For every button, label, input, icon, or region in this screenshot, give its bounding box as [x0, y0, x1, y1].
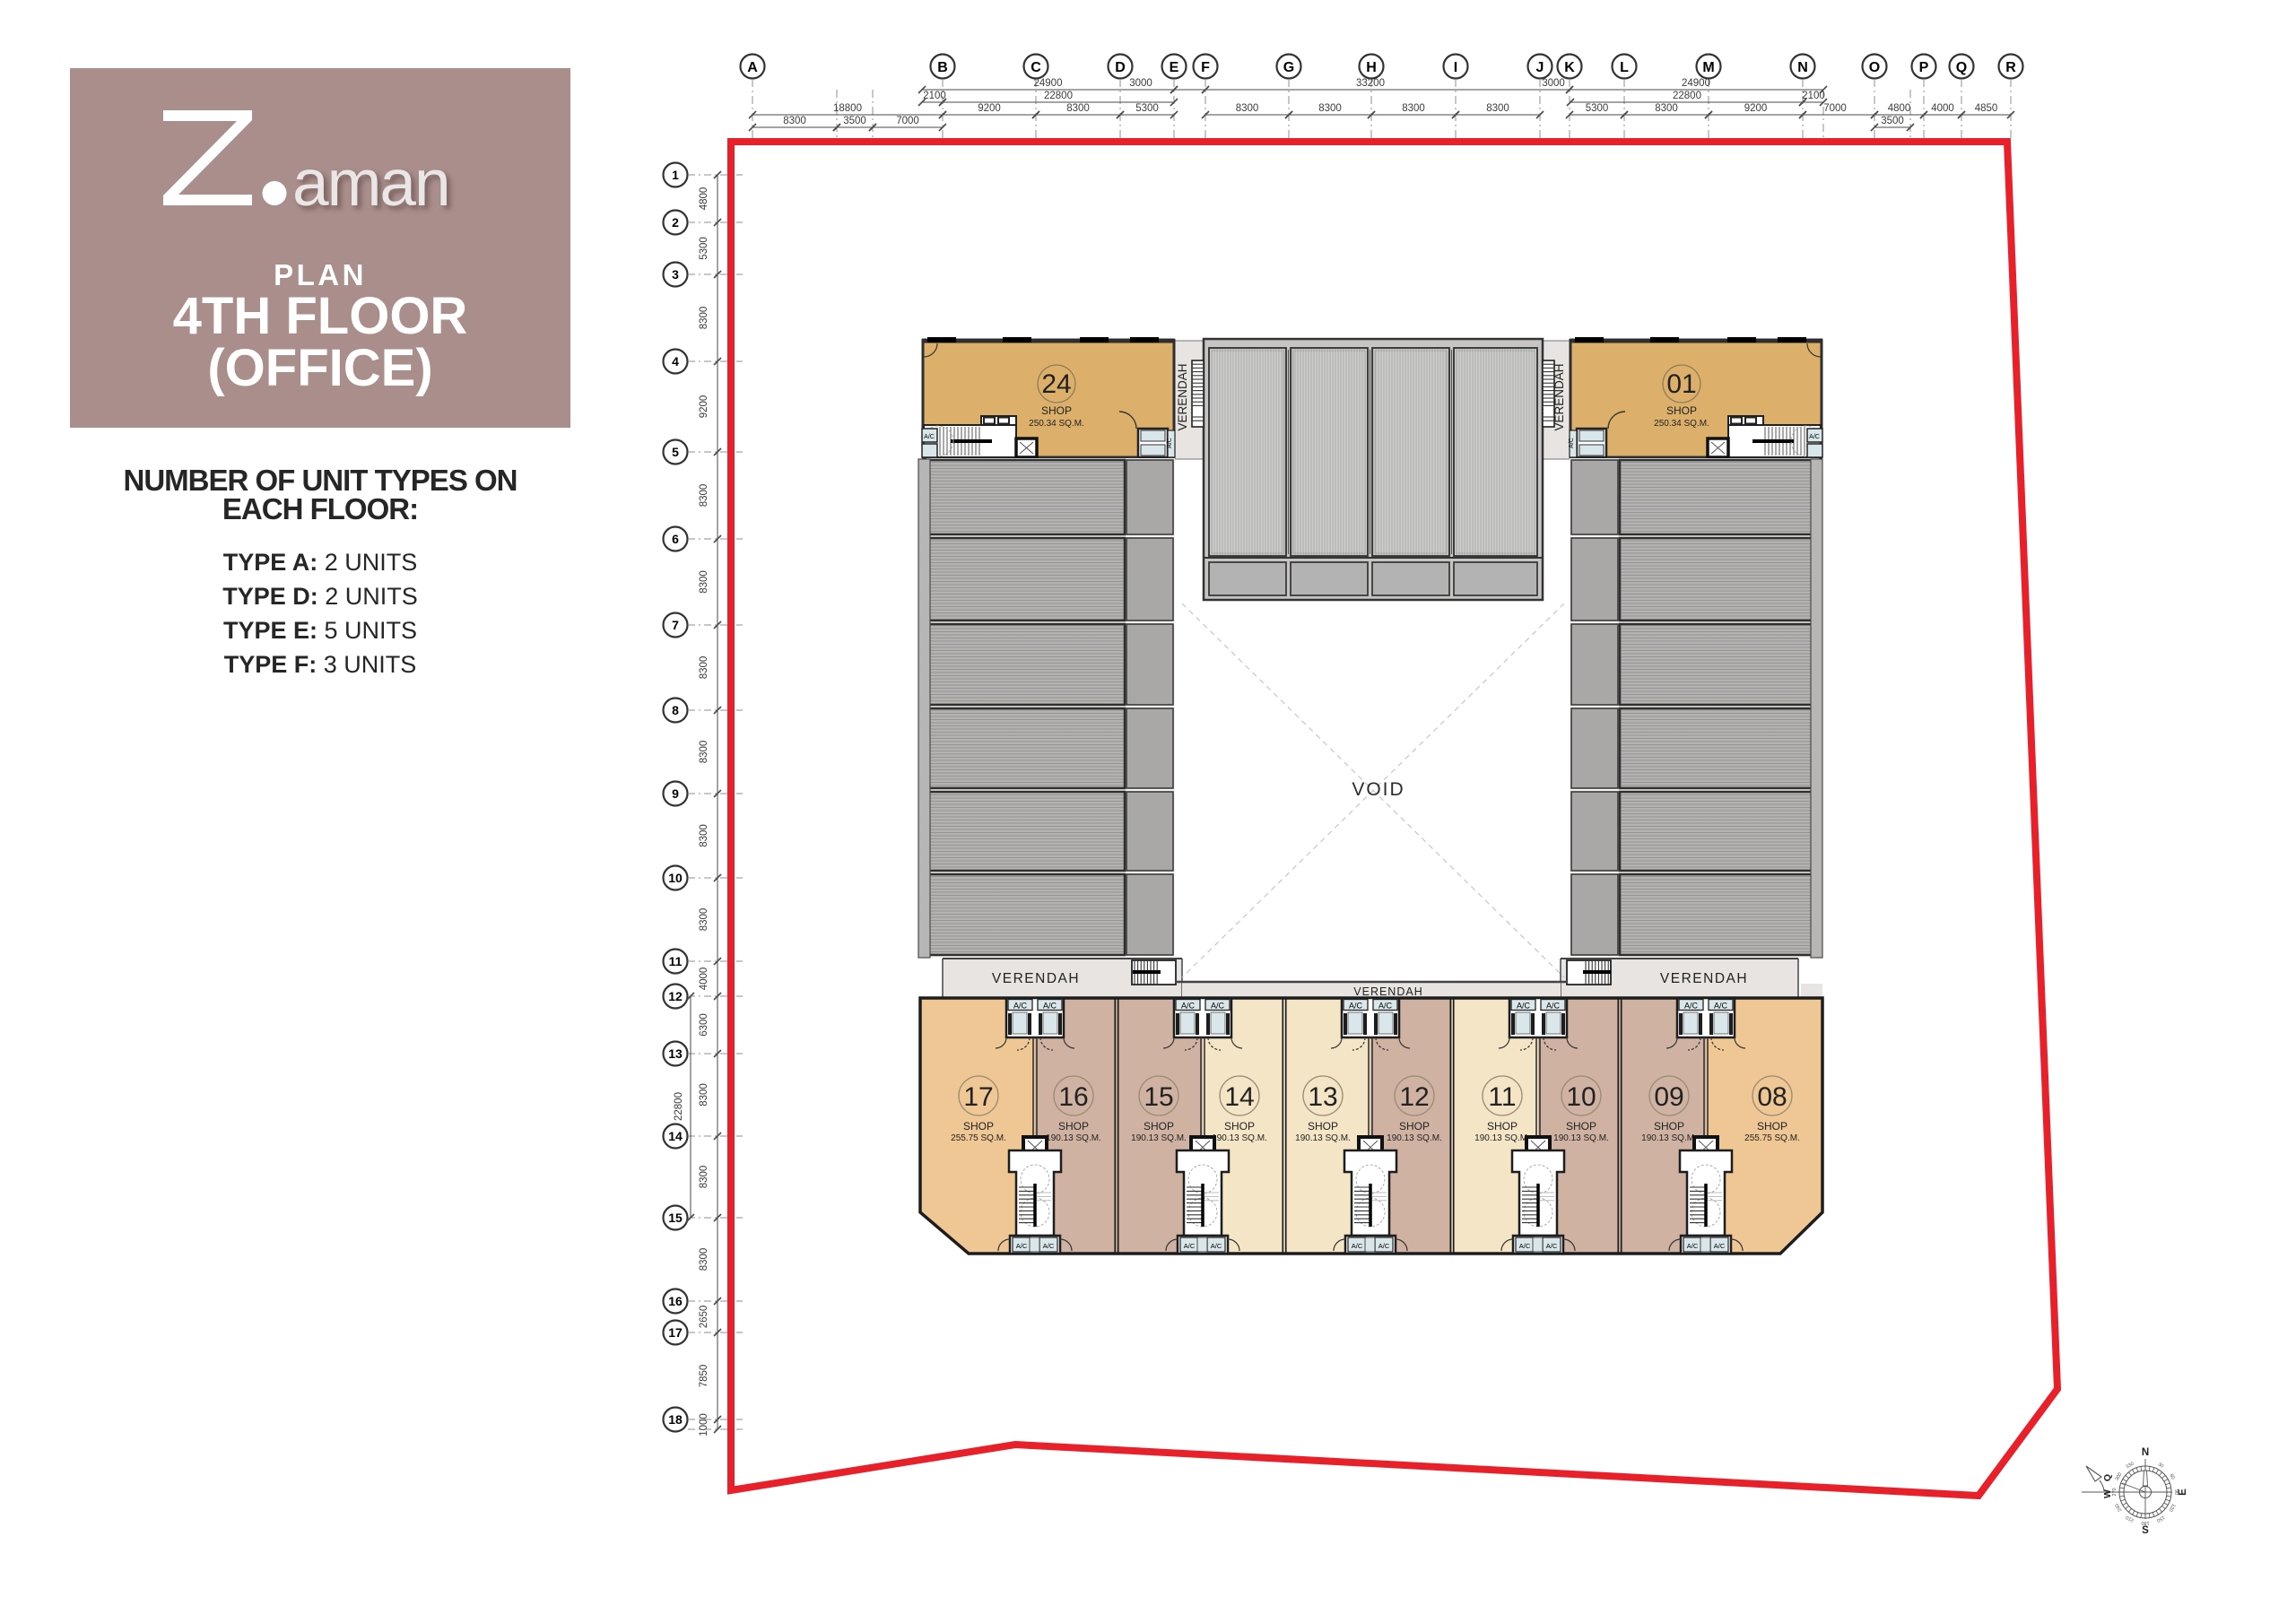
svg-text:A: A	[747, 60, 758, 75]
svg-text:SHOP: SHOP	[1144, 1120, 1174, 1133]
svg-text:4800: 4800	[1888, 103, 1911, 114]
svg-text:8300: 8300	[699, 570, 709, 594]
svg-text:8300: 8300	[783, 116, 806, 126]
svg-text:8300: 8300	[699, 908, 709, 932]
svg-text:A/C: A/C	[1546, 1002, 1561, 1011]
svg-text:8300: 8300	[1066, 103, 1090, 114]
svg-text:8300: 8300	[699, 484, 709, 508]
svg-text:250.34 SQ.M.: 250.34 SQ.M.	[1029, 419, 1084, 429]
svg-text:A/C: A/C	[1684, 1002, 1699, 1011]
svg-text:M: M	[1702, 60, 1714, 75]
svg-text:E: E	[1170, 60, 1179, 75]
svg-text:255.75 SQ.M.: 255.75 SQ.M.	[951, 1133, 1006, 1143]
svg-text:9: 9	[672, 786, 679, 801]
svg-text:1000: 1000	[699, 1413, 709, 1436]
svg-text:1: 1	[672, 168, 679, 182]
svg-text:S: S	[2142, 1525, 2149, 1536]
svg-text:4850: 4850	[1975, 103, 1998, 114]
svg-text:SHOP: SHOP	[1058, 1120, 1089, 1133]
svg-text:4000: 4000	[1931, 103, 1954, 114]
svg-text:A/C: A/C	[1687, 1242, 1699, 1250]
svg-text:8300: 8300	[1236, 103, 1259, 114]
svg-text:8300: 8300	[1402, 103, 1425, 114]
svg-text:18800: 18800	[833, 103, 862, 114]
svg-text:J: J	[1536, 60, 1544, 75]
svg-text:12: 12	[668, 989, 683, 1003]
svg-text:250.34 SQ.M.: 250.34 SQ.M.	[1654, 419, 1709, 429]
svg-text:8300: 8300	[1486, 103, 1509, 114]
svg-text:O: O	[1869, 60, 1880, 75]
svg-text:16: 16	[1058, 1082, 1088, 1112]
svg-text:Q: Q	[2102, 1474, 2113, 1481]
svg-text:33200: 33200	[1356, 78, 1385, 89]
svg-text:A/C: A/C	[1013, 1002, 1028, 1011]
svg-text:4000: 4000	[699, 968, 709, 991]
svg-text:2: 2	[672, 215, 679, 230]
svg-text:08: 08	[1757, 1082, 1787, 1112]
svg-text:12: 12	[1399, 1082, 1429, 1112]
svg-text:3500: 3500	[1881, 116, 1904, 126]
svg-text:8300: 8300	[1655, 103, 1678, 114]
svg-text:A/C: A/C	[1569, 438, 1575, 448]
svg-text:190.13 SQ.M.: 190.13 SQ.M.	[1641, 1133, 1697, 1143]
svg-text:5300: 5300	[1586, 103, 1609, 114]
svg-text:I: I	[1454, 60, 1457, 75]
svg-text:A/C: A/C	[1352, 1242, 1363, 1250]
svg-text:SHOP: SHOP	[1399, 1120, 1430, 1133]
svg-text:L: L	[1620, 60, 1629, 75]
svg-text:13: 13	[1308, 1082, 1337, 1112]
svg-text:24: 24	[1041, 369, 1071, 399]
svg-text:30: 30	[2157, 1462, 2164, 1469]
svg-text:22800: 22800	[674, 1092, 684, 1121]
svg-text:8300: 8300	[699, 656, 709, 680]
svg-text:N: N	[2142, 1447, 2149, 1458]
svg-text:2100: 2100	[1802, 91, 1825, 101]
svg-text:A/C: A/C	[1517, 1002, 1531, 1011]
svg-text:10: 10	[668, 871, 683, 885]
svg-text:270: 270	[2112, 1488, 2118, 1496]
svg-text:A/C: A/C	[1809, 434, 1820, 440]
svg-text:A/C: A/C	[1043, 1002, 1057, 1011]
svg-text:17: 17	[963, 1082, 993, 1112]
svg-text:190.13 SQ.M.: 190.13 SQ.M.	[1046, 1133, 1101, 1143]
svg-text:SHOP: SHOP	[1487, 1120, 1518, 1133]
svg-text:2100: 2100	[923, 91, 946, 101]
svg-text:K: K	[1564, 60, 1575, 75]
svg-text:VERENDAH: VERENDAH	[1353, 985, 1422, 998]
svg-text:8300: 8300	[699, 741, 709, 764]
svg-text:R: R	[2005, 60, 2016, 75]
svg-text:4: 4	[672, 354, 679, 369]
svg-text:SHOP: SHOP	[1224, 1120, 1255, 1133]
svg-text:SHOP: SHOP	[1041, 404, 1072, 417]
svg-text:5300: 5300	[1135, 103, 1159, 114]
svg-text:7000: 7000	[896, 116, 919, 126]
svg-text:4800: 4800	[699, 187, 709, 211]
svg-text:3500: 3500	[843, 116, 866, 126]
svg-text:9200: 9200	[978, 103, 1001, 114]
svg-text:11: 11	[1488, 1082, 1516, 1112]
svg-text:8: 8	[672, 703, 679, 717]
svg-text:A/C: A/C	[1167, 438, 1173, 448]
svg-text:SHOP: SHOP	[1308, 1120, 1338, 1133]
svg-text:8300: 8300	[699, 1166, 709, 1189]
svg-text:A/C: A/C	[1211, 1242, 1222, 1250]
svg-text:3000: 3000	[1129, 78, 1152, 89]
svg-text:A/C: A/C	[1714, 1242, 1726, 1250]
svg-text:13: 13	[668, 1046, 683, 1061]
svg-text:18: 18	[668, 1412, 683, 1427]
svg-text:A/C: A/C	[1349, 1002, 1363, 1011]
svg-text:D: D	[1115, 60, 1126, 75]
svg-text:8300: 8300	[699, 1083, 709, 1107]
svg-text:7000: 7000	[1823, 103, 1847, 114]
svg-text:5300: 5300	[699, 237, 709, 260]
svg-text:7850: 7850	[699, 1365, 709, 1388]
svg-text:3000: 3000	[1542, 78, 1565, 89]
svg-text:VERENDAH: VERENDAH	[992, 971, 1080, 986]
svg-text:SHOP: SHOP	[1666, 404, 1697, 417]
svg-text:SHOP: SHOP	[1757, 1120, 1787, 1133]
svg-text:G: G	[1283, 60, 1294, 75]
svg-text:A/C: A/C	[1546, 1242, 1558, 1250]
svg-text:190.13 SQ.M.: 190.13 SQ.M.	[1387, 1133, 1442, 1143]
svg-text:24900: 24900	[1034, 78, 1063, 89]
svg-text:A/C: A/C	[1378, 1242, 1390, 1250]
svg-text:SHOP: SHOP	[1654, 1120, 1684, 1133]
svg-text:190.13 SQ.M.: 190.13 SQ.M.	[1131, 1133, 1187, 1143]
svg-text:09: 09	[1654, 1082, 1683, 1112]
svg-text:01: 01	[1666, 369, 1696, 399]
svg-text:A/C: A/C	[1519, 1242, 1531, 1250]
svg-text:Q: Q	[1956, 60, 1967, 75]
svg-text:15: 15	[668, 1211, 683, 1225]
svg-text:8300: 8300	[1318, 103, 1342, 114]
svg-text:P: P	[1919, 60, 1929, 75]
svg-text:VERENDAH: VERENDAH	[1176, 363, 1189, 430]
svg-text:VOID: VOID	[1352, 779, 1405, 800]
svg-text:9200: 9200	[699, 395, 709, 419]
svg-text:A/C: A/C	[1714, 1002, 1728, 1011]
svg-text:22800: 22800	[1044, 91, 1073, 101]
svg-text:3: 3	[672, 267, 679, 282]
svg-text:2650: 2650	[699, 1306, 709, 1329]
svg-text:VERENDAH: VERENDAH	[1660, 971, 1748, 986]
svg-text:A/C: A/C	[1378, 1002, 1393, 1011]
svg-text:90: 90	[2173, 1489, 2179, 1495]
svg-text:14: 14	[668, 1129, 683, 1143]
svg-text:14: 14	[1224, 1082, 1254, 1112]
svg-text:190.13 SQ.M.: 190.13 SQ.M.	[1212, 1133, 1267, 1143]
svg-text:A/C: A/C	[1181, 1002, 1196, 1011]
svg-text:190.13 SQ.M.: 190.13 SQ.M.	[1553, 1133, 1609, 1143]
svg-text:B: B	[937, 60, 948, 75]
svg-text:H: H	[1366, 60, 1377, 75]
svg-text:6: 6	[672, 532, 679, 546]
svg-text:10: 10	[1566, 1082, 1596, 1112]
svg-text:22800: 22800	[1673, 91, 1701, 101]
svg-text:15: 15	[1144, 1082, 1173, 1112]
svg-text:5: 5	[672, 445, 679, 459]
svg-text:7: 7	[672, 618, 679, 632]
svg-text:60: 60	[2168, 1473, 2175, 1480]
svg-text:6300: 6300	[699, 1013, 709, 1037]
svg-text:255.75 SQ.M.: 255.75 SQ.M.	[1744, 1133, 1800, 1143]
svg-text:8300: 8300	[699, 307, 709, 330]
svg-text:SHOP: SHOP	[963, 1120, 994, 1133]
svg-text:A/C: A/C	[1184, 1242, 1196, 1250]
svg-text:A/C: A/C	[1016, 1242, 1028, 1250]
svg-text:180: 180	[2141, 1520, 2149, 1525]
svg-text:A/C: A/C	[924, 434, 935, 440]
svg-text:9200: 9200	[1744, 103, 1768, 114]
svg-text:11: 11	[669, 954, 683, 968]
svg-text:8300: 8300	[699, 824, 709, 847]
svg-text:190.13 SQ.M.: 190.13 SQ.M.	[1474, 1133, 1530, 1143]
svg-text:C: C	[1031, 60, 1041, 75]
svg-text:190.13 SQ.M.: 190.13 SQ.M.	[1295, 1133, 1351, 1143]
svg-text:24900: 24900	[1682, 78, 1710, 89]
svg-text:SHOP: SHOP	[1566, 1120, 1596, 1133]
svg-text:16: 16	[668, 1294, 683, 1308]
svg-text:A/C: A/C	[1043, 1242, 1055, 1250]
svg-text:F: F	[1201, 60, 1210, 75]
svg-text:17: 17	[668, 1325, 683, 1340]
svg-text:N: N	[1797, 60, 1808, 75]
svg-text:8300: 8300	[699, 1248, 709, 1271]
svg-text:A/C: A/C	[1211, 1002, 1225, 1011]
